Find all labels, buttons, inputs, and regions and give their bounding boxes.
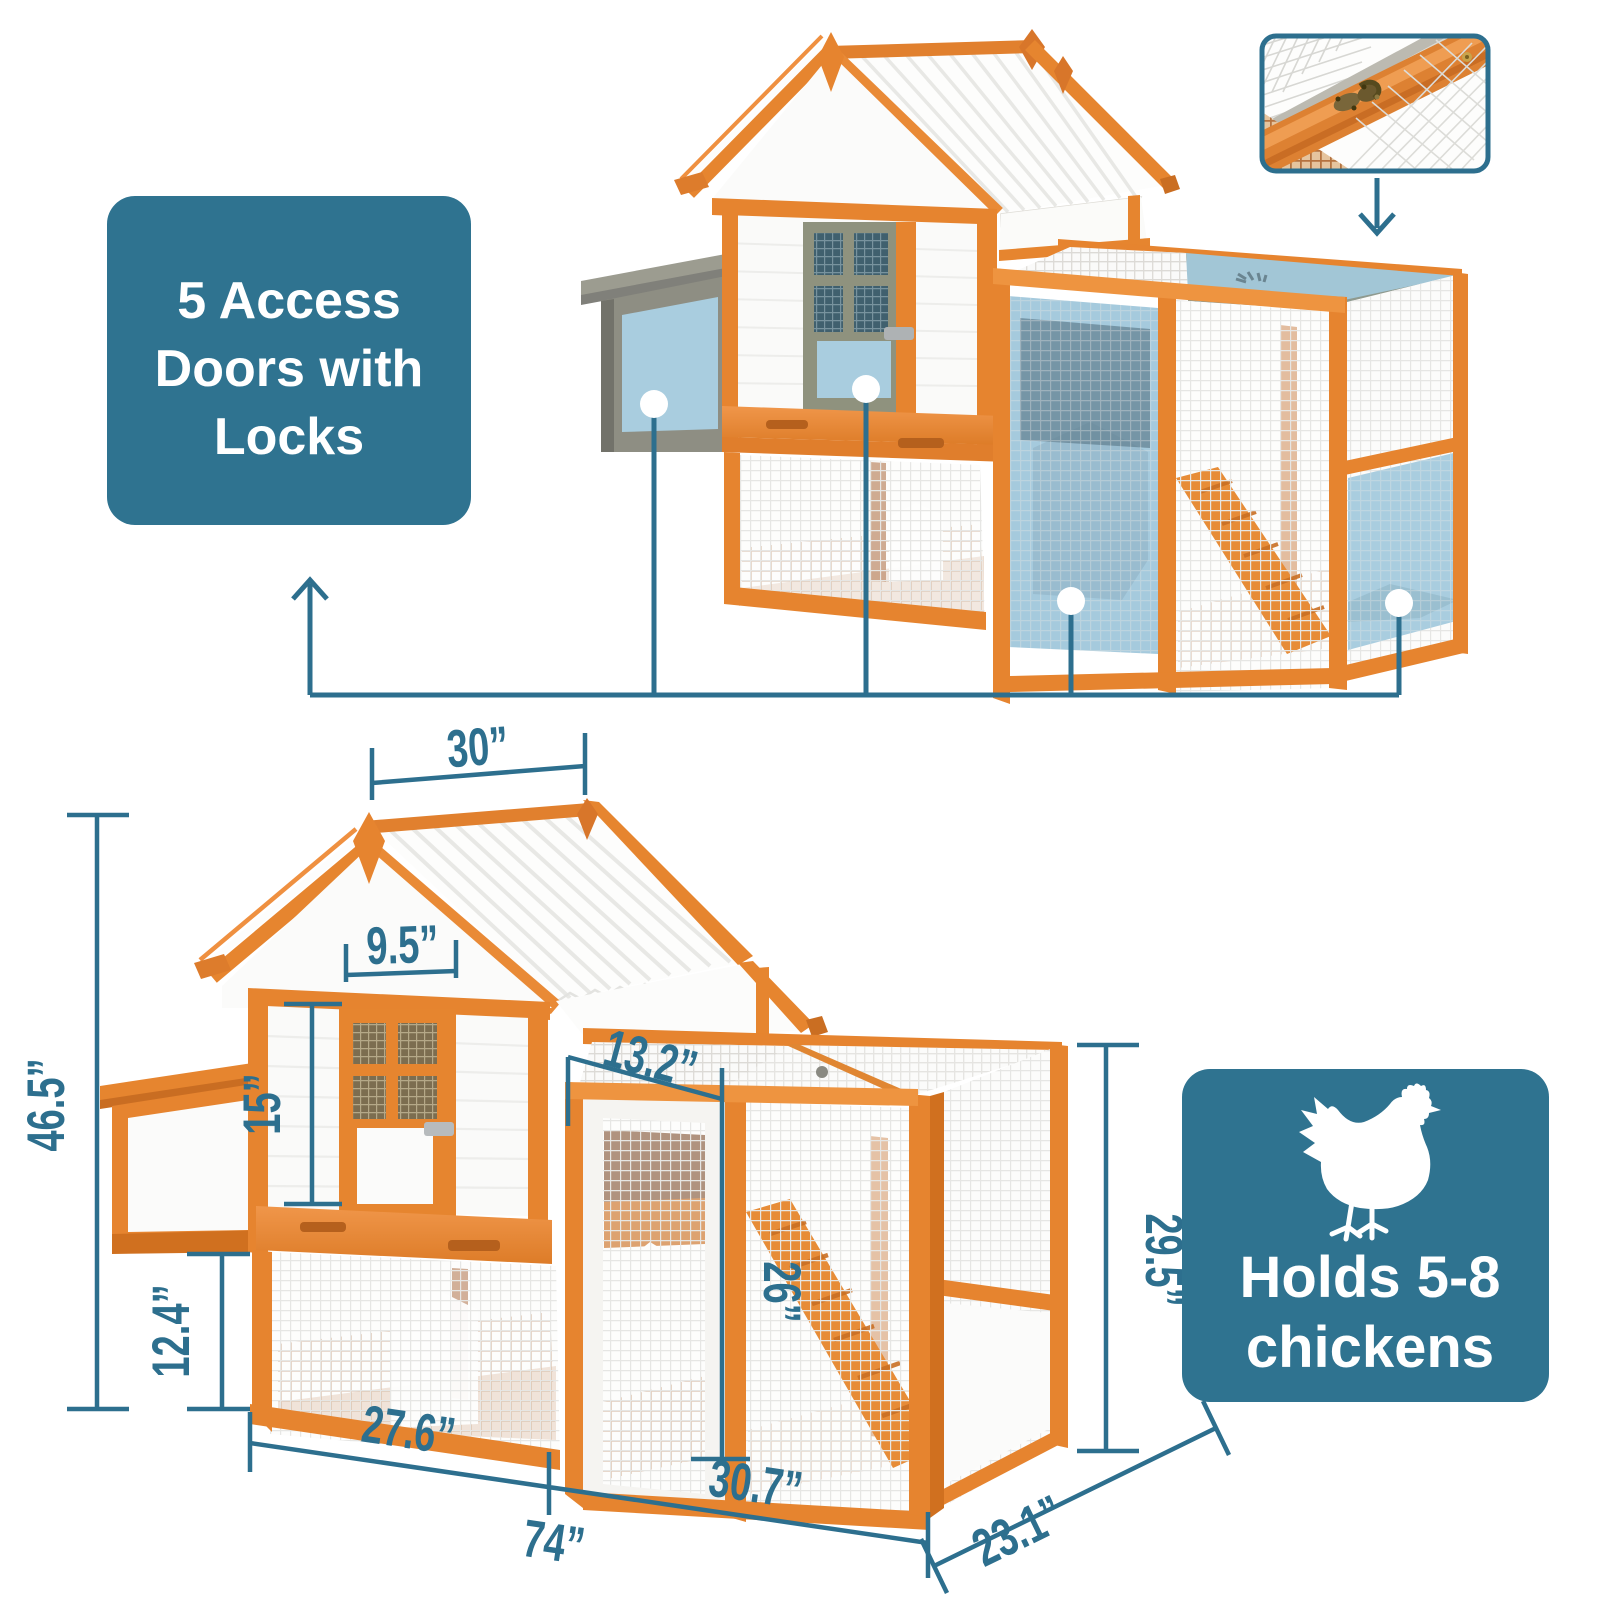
svg-text:5 Access: 5 Access <box>177 272 401 330</box>
svg-text:chickens: chickens <box>1246 1315 1494 1380</box>
svg-text:Doors with: Doors with <box>155 340 424 398</box>
svg-text:Holds 5-8: Holds 5-8 <box>1239 1245 1500 1310</box>
svg-text:27.6”: 27.6” <box>358 1393 459 1466</box>
svg-text:26”: 26” <box>753 1261 813 1323</box>
svg-text:23.1”: 23.1” <box>963 1483 1073 1578</box>
svg-text:12.4”: 12.4” <box>141 1284 201 1377</box>
svg-text:9.5”: 9.5” <box>365 914 439 976</box>
svg-text:30”: 30” <box>445 715 511 779</box>
svg-text:46.5”: 46.5” <box>16 1058 76 1151</box>
svg-text:Locks: Locks <box>214 408 364 466</box>
svg-text:74”: 74” <box>519 1508 589 1576</box>
svg-text:15”: 15” <box>232 1073 292 1135</box>
